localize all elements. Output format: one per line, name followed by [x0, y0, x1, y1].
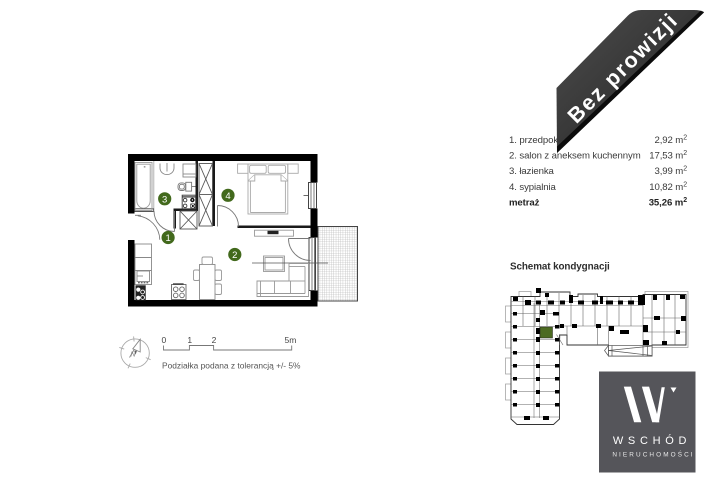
svg-text:2: 2 [212, 335, 217, 345]
svg-text:2: 2 [232, 250, 237, 261]
svg-text:NIERUCHOMOŚCI: NIERUCHOMOŚCI [612, 449, 694, 458]
svg-text:WSCHÓD: WSCHÓD [613, 434, 691, 447]
svg-text:2. salon z aneksem kuchennym: 2. salon z aneksem kuchennym [509, 151, 641, 162]
svg-text:metraż: metraż [509, 198, 540, 209]
svg-text:Schemat kondygnacji: Schemat kondygnacji [510, 262, 610, 273]
svg-text:4. sypialnia: 4. sypialnia [509, 182, 557, 193]
svg-text:1: 1 [187, 335, 192, 345]
svg-text:35,26 m2: 35,26 m2 [649, 197, 688, 209]
svg-text:4: 4 [225, 191, 230, 202]
svg-text:0: 0 [162, 335, 167, 345]
svg-text:3. łazienka: 3. łazienka [509, 166, 555, 177]
svg-text:17,53 m2: 17,53 m2 [649, 150, 687, 162]
svg-text:Podziałka podana z tolerancją: Podziałka podana z tolerancją +/- 5% [162, 360, 301, 370]
svg-text:1: 1 [165, 233, 170, 244]
svg-text:3,99 m2: 3,99 m2 [654, 166, 687, 178]
svg-text:3: 3 [162, 194, 167, 205]
svg-text:1. przedpokój: 1. przedpokój [509, 135, 565, 146]
svg-text:10,82 m2: 10,82 m2 [649, 181, 687, 193]
svg-text:5m: 5m [285, 335, 297, 345]
svg-text:2,92 m2: 2,92 m2 [654, 135, 687, 147]
